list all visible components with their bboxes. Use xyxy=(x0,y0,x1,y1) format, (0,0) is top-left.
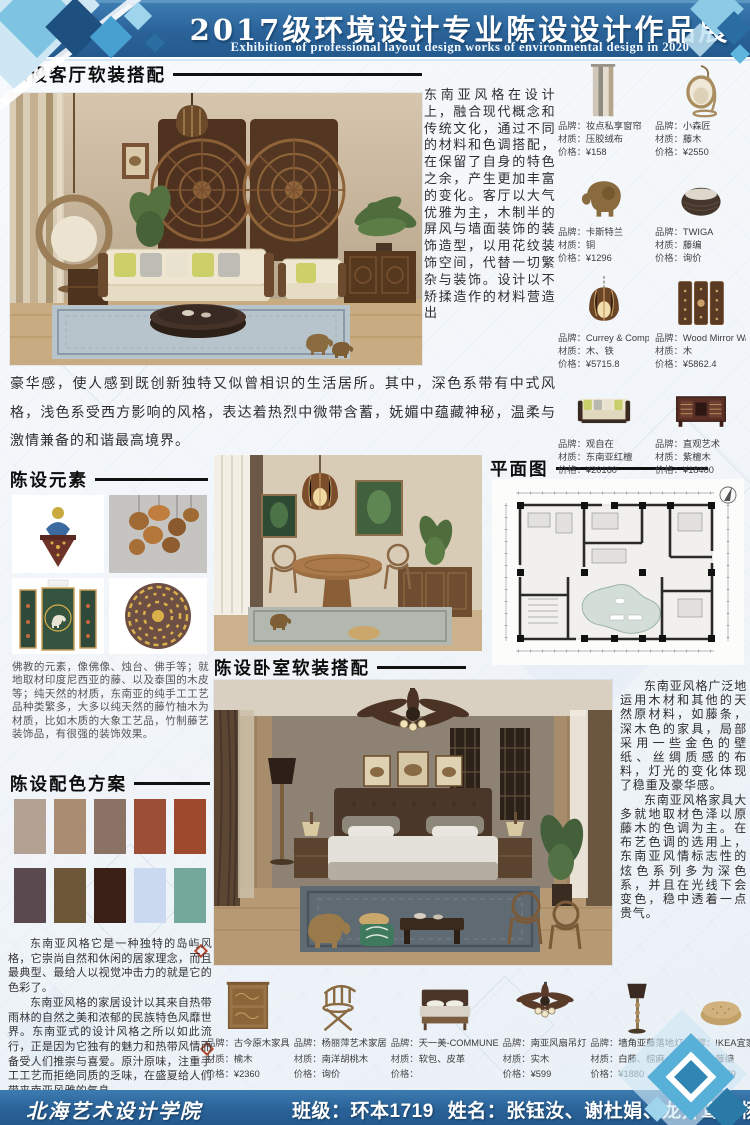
product-price: 询价 xyxy=(322,1069,341,1079)
product-brand: Wood Mirror Wall Pane xyxy=(683,333,746,343)
section-title: 陈设卧室软装搭配 xyxy=(214,655,370,680)
product-card: 品牌：TWIGA 材质：藤编 价格：询价 xyxy=(655,166,746,265)
color-swatch xyxy=(174,799,206,854)
product-price: ¥1296 xyxy=(586,253,612,263)
product-price: ¥18400 xyxy=(683,465,714,475)
class-label: 班级：环本1719 xyxy=(292,1101,434,1122)
product-card: 品牌：古今原木家具 材质：榆木 价格：¥2360 xyxy=(206,972,290,1083)
color-swatch xyxy=(94,799,126,854)
product-price: ¥599 xyxy=(531,1069,552,1079)
section-header-living: 陈设客厅软装搭配 xyxy=(10,62,422,87)
product-brand: 古今原木家具 xyxy=(234,1038,290,1048)
product-brand: 杨丽萍艺术家居 xyxy=(322,1038,387,1048)
product-card: 品牌：Currey & Company 材质：木、铁 价格：¥5715.8 xyxy=(558,272,649,371)
tv-cabinet-icon xyxy=(655,378,746,438)
wall-panels-icon xyxy=(655,272,746,332)
product-material: 南洋胡桃木 xyxy=(322,1054,369,1064)
product-price: ¥5862.4 xyxy=(683,359,717,369)
product-brand: 卡斯特兰 xyxy=(586,227,623,237)
product-price: ¥2550 xyxy=(683,147,709,157)
color-swatch xyxy=(54,799,86,854)
product-material: 压胶绒布 xyxy=(586,134,623,144)
product-card: 品牌：卡斯特兰 材质：铜 价格：¥1296 xyxy=(558,166,649,265)
buddha-ornament-image xyxy=(12,495,104,573)
folding-chair-icon xyxy=(294,972,387,1036)
section-title: 陈设元素 xyxy=(10,467,88,492)
product-material: 实木 xyxy=(531,1054,550,1064)
product-brand: 天一美-COMMUNE xyxy=(419,1038,499,1048)
gold-mandala-disc-image xyxy=(109,578,207,654)
elephant-icon xyxy=(558,166,649,226)
sofa-icon xyxy=(558,378,649,438)
product-card: 品牌：南亚风扇吊灯 材质：实木 价格：¥599 xyxy=(503,972,587,1083)
product-brand: TWIGA xyxy=(683,227,713,237)
living-room-illustration xyxy=(10,93,422,365)
product-card: 品牌：直观艺术 材质：紫檀木 价格：¥18400 xyxy=(655,378,746,477)
bedroom-paragraph-2: 东南亚风格家具大多就地取材色泽以原藤木的色调为主。在布艺色调的选用上，东南亚风情… xyxy=(620,793,747,921)
product-card: 品牌：观自在 材质：东南亚红檀 价格：¥20160 xyxy=(558,378,649,477)
product-card: 品牌：杨丽萍艺术家居 材质：南洋胡桃木 价格：询价 xyxy=(294,972,387,1083)
product-material: 木 xyxy=(683,346,692,356)
color-swatch xyxy=(134,868,166,923)
color-swatch xyxy=(94,868,126,923)
elements-paragraph: 佛教的元素，像佛像、烛台、佛手等；就地取材印度尼西亚的藤、以及泰国的木皮等；纯天… xyxy=(12,661,209,741)
bed-icon xyxy=(391,972,499,1036)
color-swatch xyxy=(134,799,166,854)
color-swatch xyxy=(14,799,46,854)
product-brand: Currey & Company xyxy=(586,333,649,343)
palette-paragraphs: 东南亚风格它是一种独特的岛屿风格，它崇尚自然和休闲的居家理念，而且最典型、最给人… xyxy=(8,937,212,1099)
product-material: 木、铁 xyxy=(586,346,614,356)
pendant-lamp-icon xyxy=(558,272,649,332)
product-material: 紫檀木 xyxy=(683,452,711,462)
product-material: 榆木 xyxy=(234,1054,253,1064)
school-name: 北海艺术设计学院 xyxy=(26,1095,202,1124)
palette-paragraph-1: 东南亚风格它是一种独特的岛屿风格，它崇尚自然和休闲的居家理念，而且最典型、最给人… xyxy=(8,937,212,996)
bedroom-paragraph-1: 东南亚风格广泛地运用木材和其他的天然原材料，如藤条，深木色的家具，局部采用一些金… xyxy=(620,679,747,793)
dining-room-photo xyxy=(214,455,482,651)
color-swatch xyxy=(174,868,206,923)
product-brand: 南亚风扇吊灯 xyxy=(531,1038,587,1048)
product-brand: 小森匠 xyxy=(683,121,711,131)
floor-plan-drawing xyxy=(492,479,744,665)
color-swatch-grid xyxy=(14,799,210,923)
bedroom-paragraph: 东南亚风格广泛地运用木材和其他的天然原材料，如藤条，深木色的家具，局部采用一些金… xyxy=(620,679,747,920)
color-swatch xyxy=(14,868,46,923)
color-swatch xyxy=(54,868,86,923)
living-side-paragraph: 东南亚风格在设计上，融合现代概念和传统文化，通过不同的材料和色调搭配，在保留了自… xyxy=(424,87,556,322)
living-room-photo xyxy=(10,93,422,365)
rattan-stool-icon xyxy=(655,166,746,226)
wood-lamp-cluster-image xyxy=(109,495,207,573)
palette-paragraph-2: 东南亚风格的家居设计以其来自热带雨林的自然之美和浓郁的民族特色风靡世界。东南亚式… xyxy=(8,996,212,1099)
section-header-elements: 陈设元素 xyxy=(10,467,208,492)
product-brand: 妆点私享窗帘 xyxy=(586,121,642,131)
product-brand: 直观艺术 xyxy=(683,439,720,449)
product-price: ¥20160 xyxy=(586,465,617,475)
product-card: 品牌：小森匠 材质：藤木 价格：¥2550 xyxy=(655,60,746,159)
product-material: 铜 xyxy=(586,240,595,250)
product-price: ¥2360 xyxy=(234,1069,260,1079)
section-title: 平面图 xyxy=(490,456,549,481)
section-header-bedroom: 陈设卧室软装搭配 xyxy=(214,655,466,680)
section-header-palette: 陈设配色方案 xyxy=(10,771,210,796)
product-material: 东南亚红檀 xyxy=(586,452,633,462)
bedroom-photo xyxy=(214,680,612,965)
living-bottom-paragraph: 豪华感，使人感到既创新独特又似曾相识的生活居所。其中，深色系带有中式风格，浅色系… xyxy=(10,369,556,455)
nightstand-icon xyxy=(206,972,290,1036)
section-title: 陈设配色方案 xyxy=(10,771,127,796)
product-material: 藤木 xyxy=(683,134,702,144)
ceiling-fan-icon xyxy=(503,972,587,1036)
product-brand: 观自在 xyxy=(586,439,614,449)
product-price: 询价 xyxy=(683,253,702,263)
elements-image-grid xyxy=(12,495,208,655)
hanging-chair-icon xyxy=(655,60,746,120)
poster-page: 2017级环境设计专业陈设设计作品展 Exhibition of profess… xyxy=(0,0,750,1125)
product-card: 品牌：天一美-COMMUNE 材质：软包、皮革 价格： xyxy=(391,972,499,1083)
product-card: 品牌：Wood Mirror Wall Pane 材质：木 价格：¥5862.4 xyxy=(655,272,746,371)
product-panel-right: 品牌：妆点私享窗帘 材质：压胶绒布 价格：¥158 品牌：小森匠 材质：藤木 价… xyxy=(558,60,746,477)
product-material: 软包、皮革 xyxy=(419,1054,466,1064)
product-price: ¥5715.8 xyxy=(586,359,620,369)
elephant-triptych-image xyxy=(12,578,104,654)
curtain-icon xyxy=(558,60,649,120)
product-price: ¥158 xyxy=(586,147,607,157)
page-subtitle: Exhibition of professional layout design… xyxy=(180,40,740,55)
product-material: 藤编 xyxy=(683,240,702,250)
product-card: 品牌：妆点私享窗帘 材质：压胶绒布 价格：¥158 xyxy=(558,60,649,159)
